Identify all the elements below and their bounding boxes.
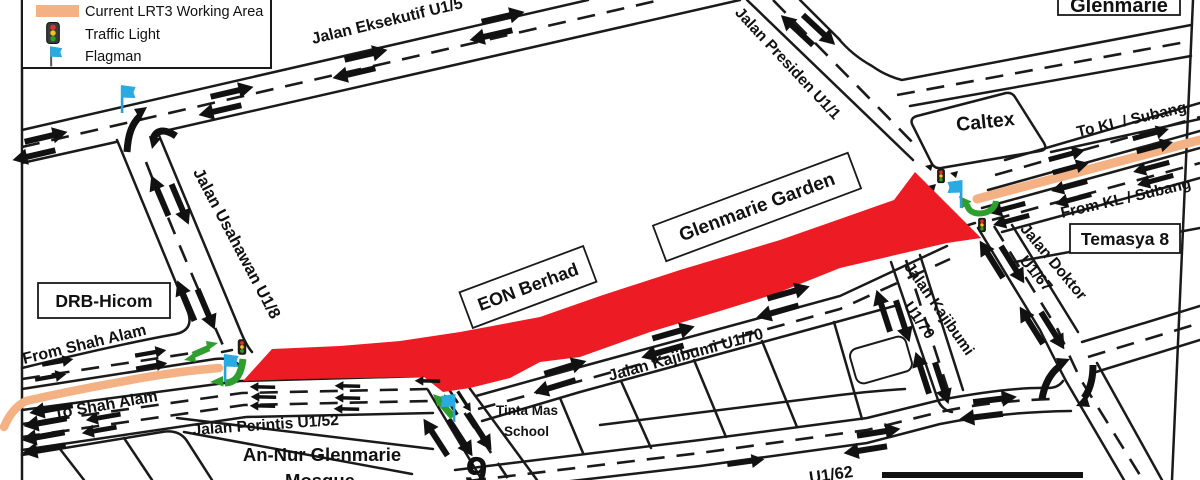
svg-text:Glenmarie: Glenmarie [1070, 0, 1168, 17]
svg-text:An-Nur Glenmarie: An-Nur Glenmarie [243, 444, 401, 465]
svg-text:Current LRT3 Working Area: Current LRT3 Working Area [85, 4, 264, 20]
svg-text:Mosque: Mosque [285, 470, 355, 480]
svg-text:Traffic Light: Traffic Light [85, 27, 160, 43]
svg-text:DRB-Hicom: DRB-Hicom [55, 291, 152, 311]
svg-text:School: School [504, 424, 549, 439]
svg-text:Tinta Mas: Tinta Mas [496, 403, 558, 418]
svg-text:Temasya 8: Temasya 8 [1081, 229, 1169, 249]
svg-text:Flagman: Flagman [85, 49, 141, 65]
